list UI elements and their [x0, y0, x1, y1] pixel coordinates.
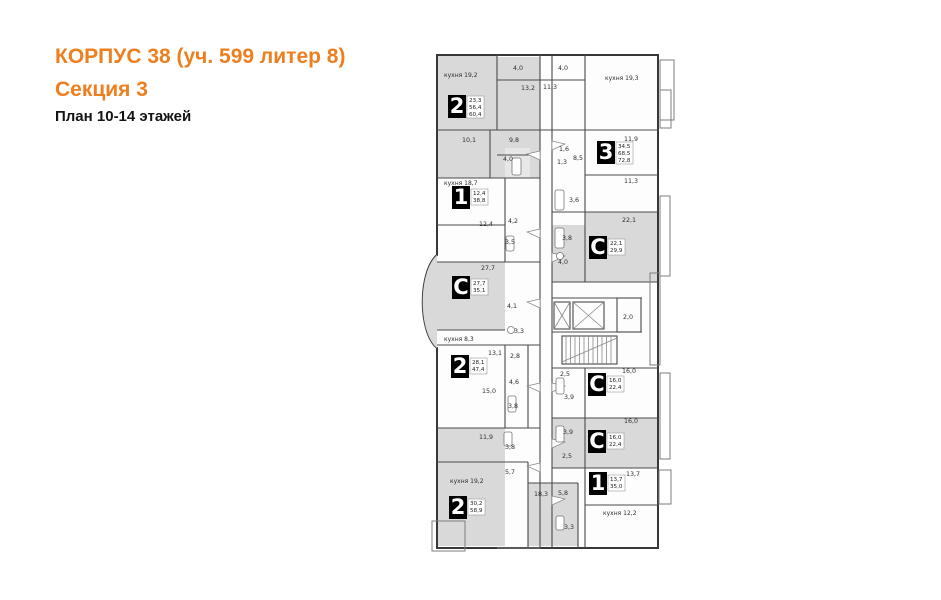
unit-type: С [453, 275, 468, 299]
room-area-label: 4,0 [503, 156, 513, 163]
room-area-label: 9,8 [509, 137, 519, 144]
unit-badge-3-right: 3 34,5 68,5 72,8 [597, 140, 633, 164]
unit-type: С [589, 429, 604, 453]
room-area-label: 11,3 [624, 178, 638, 185]
unit-area: 60,4 [469, 112, 482, 118]
kitchen-label: кухня 18,7 [444, 180, 478, 187]
room-area-label: 15,0 [482, 388, 496, 395]
floor-plan-page: КОРПУС 38 (уч. 599 литер 8) Секция 3 Пла… [0, 0, 941, 600]
unit-type: 1 [454, 185, 469, 209]
room-area-label: 3,9 [564, 394, 574, 401]
room-area-label: 11,9 [624, 136, 638, 143]
room-area-label: 8,5 [573, 155, 583, 162]
room-area-label: 13,2 [521, 85, 535, 92]
unit-area: 58,9 [470, 508, 483, 514]
unit-area: 23,3 [469, 98, 482, 104]
room-area-label: 2,8 [510, 353, 520, 360]
unit-area: 22,1 [610, 241, 623, 247]
kitchen-label: кухня 19,2 [450, 478, 484, 485]
unit-badge-2-topleft: 2 23,3 56,4 60,4 [448, 94, 484, 118]
floor-plan-drawing: 2 23,3 56,4 60,4 3 34,5 68,5 72,8 1 12,4… [0, 0, 941, 600]
room-area-label: 1,6 [559, 146, 569, 153]
room-area-label: 13,1 [488, 350, 502, 357]
unit-type: 3 [599, 140, 614, 164]
room-area-label: 27,7 [481, 265, 495, 272]
room-area-label: 2,5 [562, 453, 572, 460]
room-area-label: 4,1 [507, 303, 517, 310]
room-area-label: 4,6 [509, 379, 519, 386]
unit-type: 1 [591, 471, 606, 495]
unit-type: С [589, 372, 604, 396]
unit-area: 12,4 [473, 191, 486, 197]
room-area-label: 2,0 [623, 314, 633, 321]
unit-area: 35,0 [610, 484, 623, 490]
room-area-label: 16,0 [624, 418, 638, 425]
unit-area: 13,7 [610, 477, 623, 483]
kitchen-label: кухня 12,2 [603, 510, 637, 517]
room-area-label: 3,9 [563, 429, 573, 436]
room-area-label: 3,8 [562, 235, 572, 242]
unit-area: 38,8 [473, 198, 486, 204]
room-area-label: 4,0 [513, 65, 523, 72]
room-area-label: 16,0 [622, 368, 636, 375]
unit-type: 2 [450, 94, 465, 118]
room-area-label: 11,9 [479, 434, 493, 441]
room-area-label: 3,5 [505, 239, 515, 246]
unit-area: 72,8 [618, 158, 631, 164]
room-area-label: 5,8 [558, 490, 568, 497]
unit-area: 16,0 [609, 435, 622, 441]
room-area-label: 12,4 [479, 221, 493, 228]
unit-type: С [590, 235, 605, 259]
unit-area: 34,5 [618, 144, 631, 150]
room-area-label: 13,7 [626, 471, 640, 478]
room-area-label: 22,1 [622, 217, 636, 224]
unit-area: 29,9 [610, 248, 623, 254]
room-area-label: 4,2 [508, 218, 518, 225]
unit-type: 2 [451, 495, 466, 519]
room-area-label: 1,3 [557, 159, 567, 166]
room-area-label: 2,5 [560, 371, 570, 378]
room-area-label: 18,3 [534, 491, 548, 498]
room-area-label: 4,0 [558, 65, 568, 72]
room-area-label: 3,8 [508, 403, 518, 410]
room-area-label: 5,7 [505, 469, 515, 476]
room-area-label: 3,8 [505, 444, 515, 451]
unit-area: 56,4 [469, 105, 482, 111]
unit-area: 16,0 [609, 378, 622, 384]
unit-area: 68,5 [618, 151, 631, 157]
kitchen-label: кухня 19,2 [444, 72, 478, 79]
room-area-label: 4,0 [558, 259, 568, 266]
unit-area: 22,4 [609, 442, 622, 448]
unit-area: 30,2 [470, 501, 482, 507]
unit-area: 47,4 [472, 367, 485, 373]
room-area-label: 11,3 [543, 84, 557, 91]
kitchen-label: кухня 8,3 [444, 336, 474, 343]
unit-type: 2 [453, 354, 468, 378]
unit-area: 28,1 [472, 360, 485, 366]
room-area-label: 10,1 [462, 137, 476, 144]
unit-area: 35,1 [473, 288, 486, 294]
room-area-label: 3,3 [514, 328, 524, 335]
kitchen-label: кухня 19,3 [605, 75, 639, 82]
unit-area: 22,4 [609, 385, 622, 391]
room-area-label: 3,3 [564, 524, 574, 531]
unit-area: 27,7 [473, 281, 486, 287]
room-area-label: 3,6 [569, 197, 579, 204]
